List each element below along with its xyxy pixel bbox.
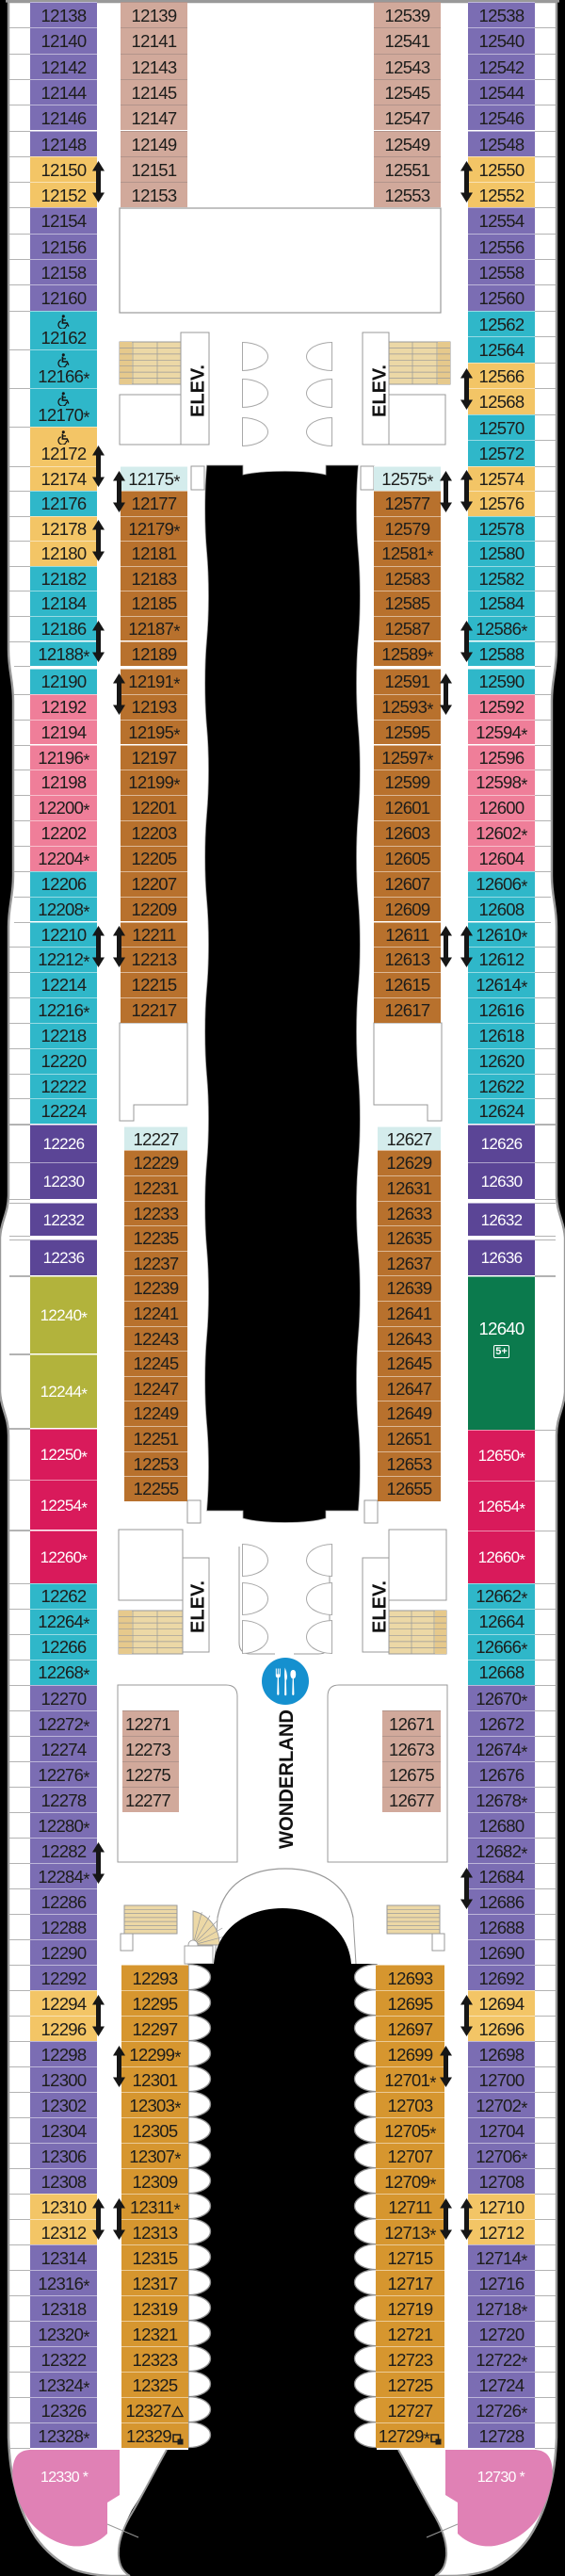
svg-text:WONDERLAND: WONDERLAND bbox=[275, 1709, 298, 1849]
svg-text:ELEV.: ELEV. bbox=[370, 365, 391, 417]
svg-text:ELEV.: ELEV. bbox=[188, 365, 209, 417]
svg-text:ELEV.: ELEV. bbox=[188, 1580, 209, 1633]
svg-text:ELEV.: ELEV. bbox=[370, 1580, 391, 1633]
